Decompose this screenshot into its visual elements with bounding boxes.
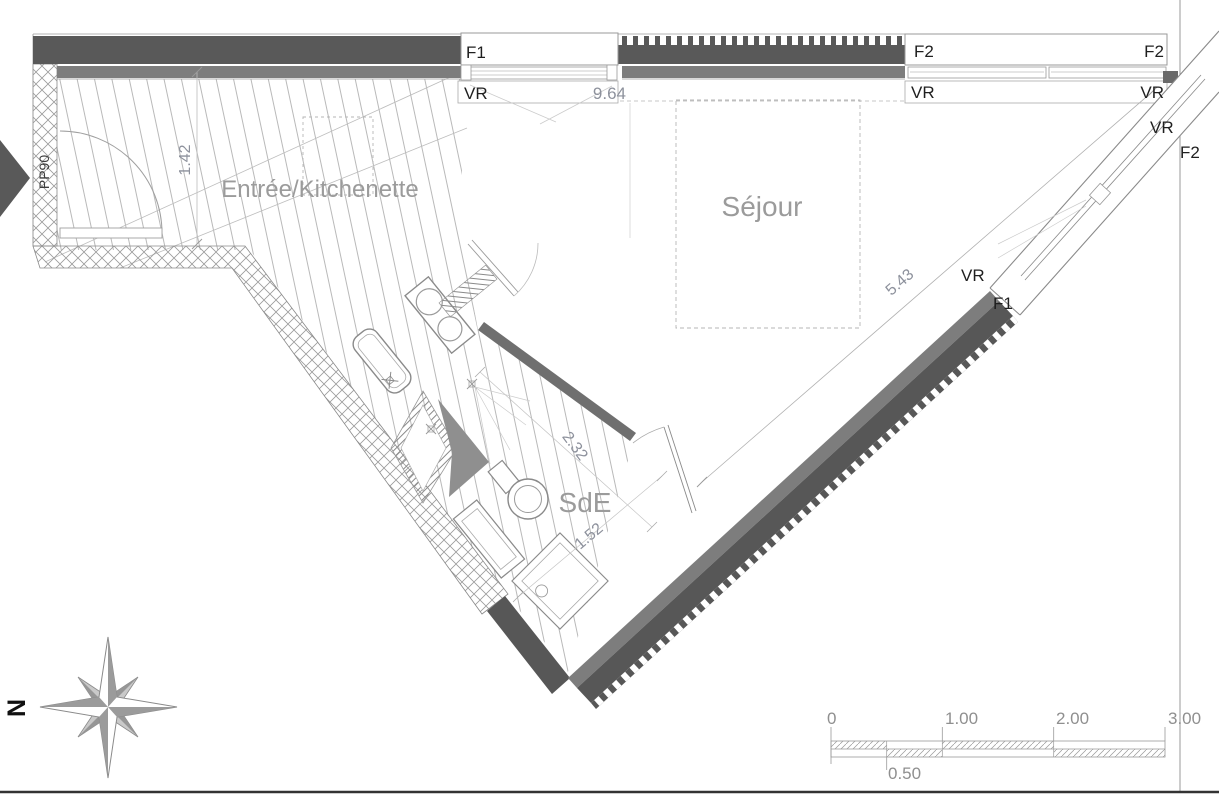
scale-tick-05: 0.50 [888, 764, 921, 783]
label-pp90: PP90 [36, 155, 52, 189]
label-vr-f1: VR [464, 84, 488, 103]
vr-shutter-box [905, 81, 1167, 103]
dimension-9-64: 9.64 [593, 84, 626, 103]
label-vr-f2-left: VR [911, 83, 935, 102]
label-f2-right: F2 [1144, 42, 1164, 61]
scale-tick-2: 2.00 [1056, 709, 1089, 728]
scale-tick-1: 1.00 [945, 709, 978, 728]
room-label-sejour: Séjour [722, 191, 803, 222]
floor-plan-drawing: Entrée/Kitchenette Séjour SdE F1 VR 9.64… [0, 0, 1219, 800]
room-label-entree: Entrée/Kitchenette [221, 176, 418, 203]
window-f2-top [905, 34, 1178, 103]
scale-tick-0: 0 [827, 709, 836, 728]
insulation-ticks [618, 36, 905, 45]
label-vr-corner: VR [1150, 118, 1174, 137]
dimension-1-42: 1.42 [177, 144, 194, 175]
label-f2-diagonal: F2 [1180, 143, 1200, 162]
floor-plan-page: Entrée/Kitchenette Séjour SdE F1 VR 9.64… [0, 0, 1219, 800]
north-label: N [3, 699, 31, 717]
label-vr-diagonal: VR [961, 266, 985, 285]
label-f1-diagonal: F1 [993, 294, 1013, 313]
label-vr-f2-right: VR [1140, 83, 1164, 102]
room-label-sde: SdE [559, 487, 612, 518]
label-f2-left: F2 [914, 42, 934, 61]
label-f1-top: F1 [466, 43, 486, 62]
scale-tick-3: 3.00 [1168, 709, 1201, 728]
